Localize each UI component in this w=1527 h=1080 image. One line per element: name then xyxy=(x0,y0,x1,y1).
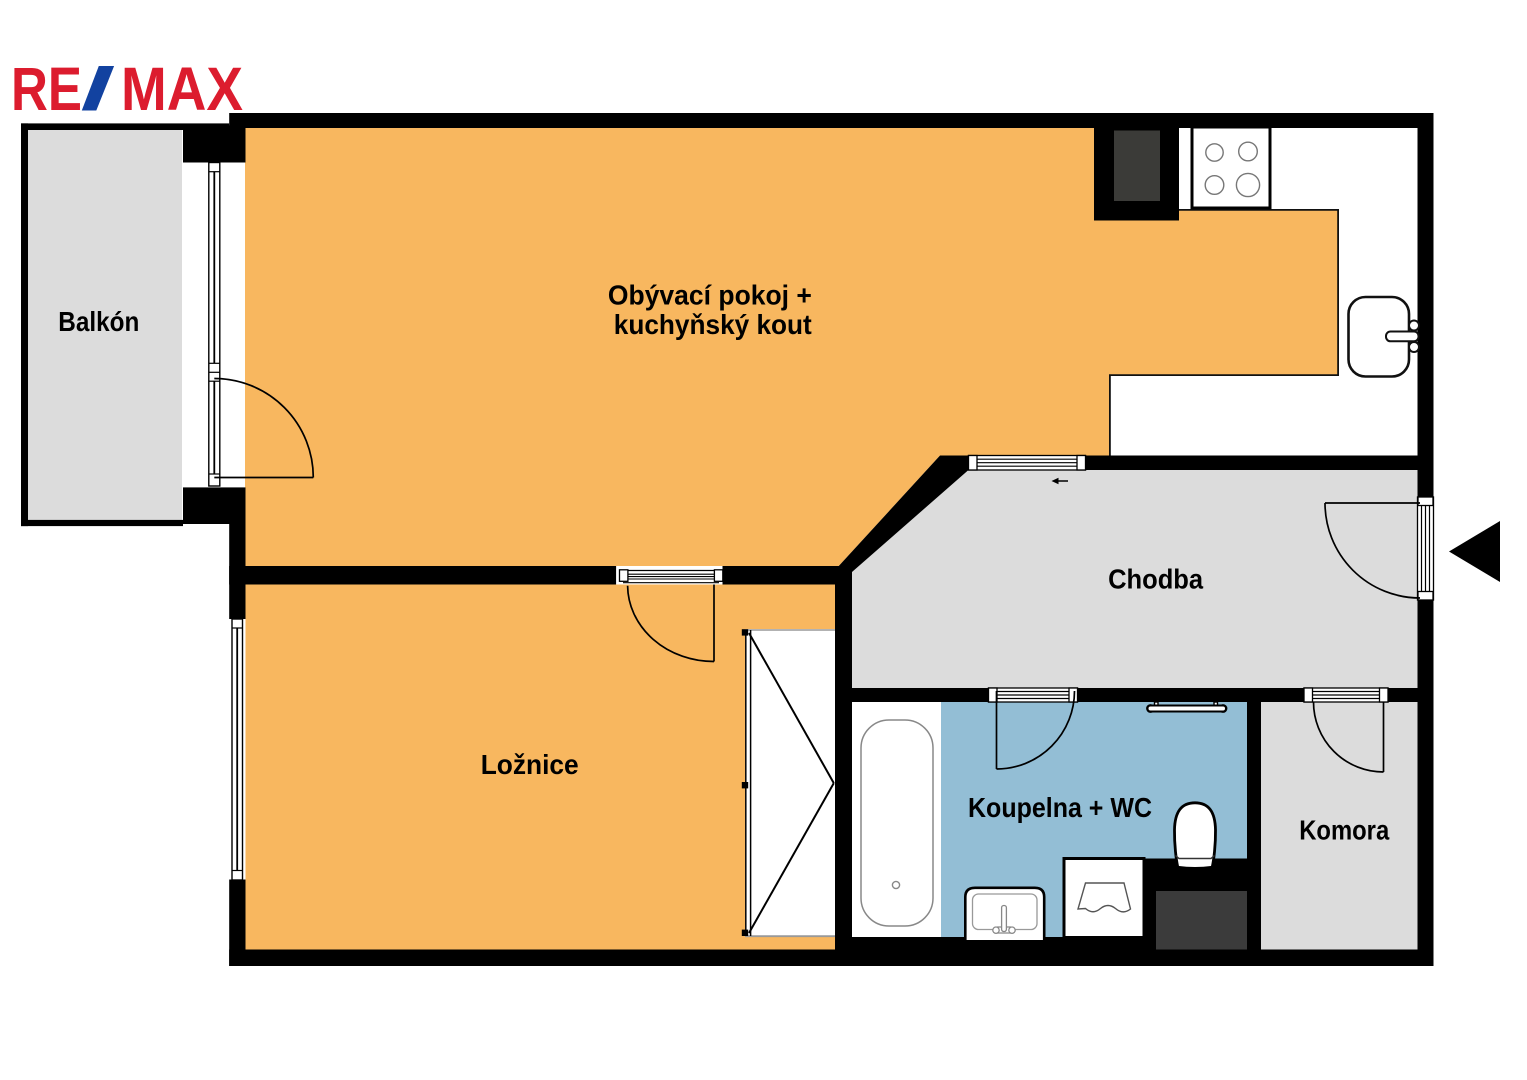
svg-text:kuchyňský kout: kuchyňský kout xyxy=(614,309,812,340)
svg-text:MAX: MAX xyxy=(121,55,243,123)
svg-text:Balkón: Balkón xyxy=(58,306,139,337)
svg-text:Ložnice: Ložnice xyxy=(481,749,579,780)
svg-text:Obývací pokoj +: Obývací pokoj + xyxy=(608,279,812,310)
svg-text:Komora: Komora xyxy=(1299,815,1389,846)
svg-text:Koupelna + WC: Koupelna + WC xyxy=(968,792,1152,823)
svg-text:Chodba: Chodba xyxy=(1108,564,1203,595)
svg-text:RE: RE xyxy=(11,55,82,123)
